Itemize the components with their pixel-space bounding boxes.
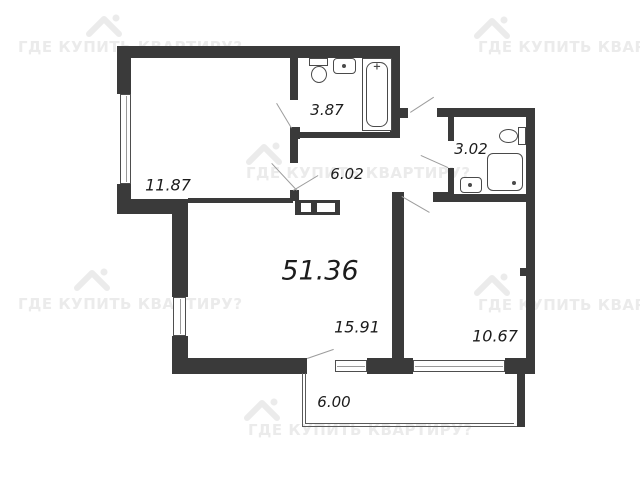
watermark-text: ГДЕ КУПИТЬ КВАРТИРУ? — [478, 296, 640, 314]
wall-right-step — [520, 268, 527, 276]
window-bedroom-bottom — [413, 360, 505, 372]
room-area-label: 15.91 — [334, 318, 380, 337]
wall-kitchen-hall-2 — [290, 139, 298, 163]
door-bathroom-top — [276, 103, 292, 128]
floor-plan: ГДЕ КУПИТЬ КВАРТИРУ? ГДЕ КУПИТЬ КВАРТИРУ… — [0, 0, 640, 480]
toilet-bowl-icon — [499, 129, 518, 143]
house-icon — [474, 271, 510, 297]
door-entrance — [410, 97, 434, 113]
door-bedroom — [402, 196, 430, 213]
wall-balcony-right — [517, 374, 525, 427]
wall-living-left-upper — [172, 199, 188, 297]
wall-right — [526, 108, 535, 374]
house-icon — [86, 12, 122, 38]
door-balcony — [307, 349, 334, 359]
wall-top-right — [437, 108, 535, 117]
room-area-label: 3.02 — [454, 140, 487, 158]
room-area-label: 6.00 — [317, 393, 350, 411]
wall-bottom-left — [172, 358, 307, 374]
room-area-label: 6.02 — [330, 165, 363, 183]
house-icon — [74, 266, 110, 292]
house-icon — [246, 140, 282, 166]
wall-window-pier — [367, 358, 413, 374]
room-area-label: 11.87 — [145, 176, 191, 195]
house-icon — [244, 396, 280, 422]
sink-faucet-dot — [342, 64, 346, 68]
wall-kitchen-living-thin — [188, 198, 293, 203]
watermark-text: ГДЕ КУПИТЬ КВАРТИРУ? — [18, 295, 243, 313]
wardrobe-cell — [301, 203, 311, 212]
window-living-left — [173, 297, 186, 336]
room-area-label: 10.67 — [472, 327, 518, 346]
wall-top — [117, 46, 400, 58]
wardrobe-cell — [317, 203, 335, 212]
wall-living-bedroom — [392, 192, 404, 358]
watermark-text: ГДЕ КУПИТЬ КВАРТИРУ? — [478, 38, 640, 56]
toilet-bowl-icon — [311, 66, 327, 83]
window-living-bottom — [335, 360, 367, 372]
house-icon — [474, 14, 510, 40]
room-area-label: 3.87 — [310, 101, 343, 119]
shower-icon — [487, 153, 523, 191]
wall-entrance-stub — [398, 108, 408, 118]
total-area-label: 51.36 — [281, 256, 358, 287]
wall-bath-bottom — [293, 132, 397, 138]
toilet-tank-icon — [309, 58, 328, 66]
wall-kitchen-hall-1 — [290, 58, 298, 100]
shower-drain-dot — [512, 181, 516, 185]
wall-302-left-top — [448, 117, 454, 141]
wall-bedroom-top — [433, 194, 530, 202]
bathtub-faucet-icon: + — [373, 62, 381, 73]
sink-faucet-dot — [468, 183, 472, 187]
window-kitchen-left — [120, 94, 131, 184]
toilet-tank-icon — [518, 127, 526, 145]
wall-left-upper — [117, 46, 131, 94]
